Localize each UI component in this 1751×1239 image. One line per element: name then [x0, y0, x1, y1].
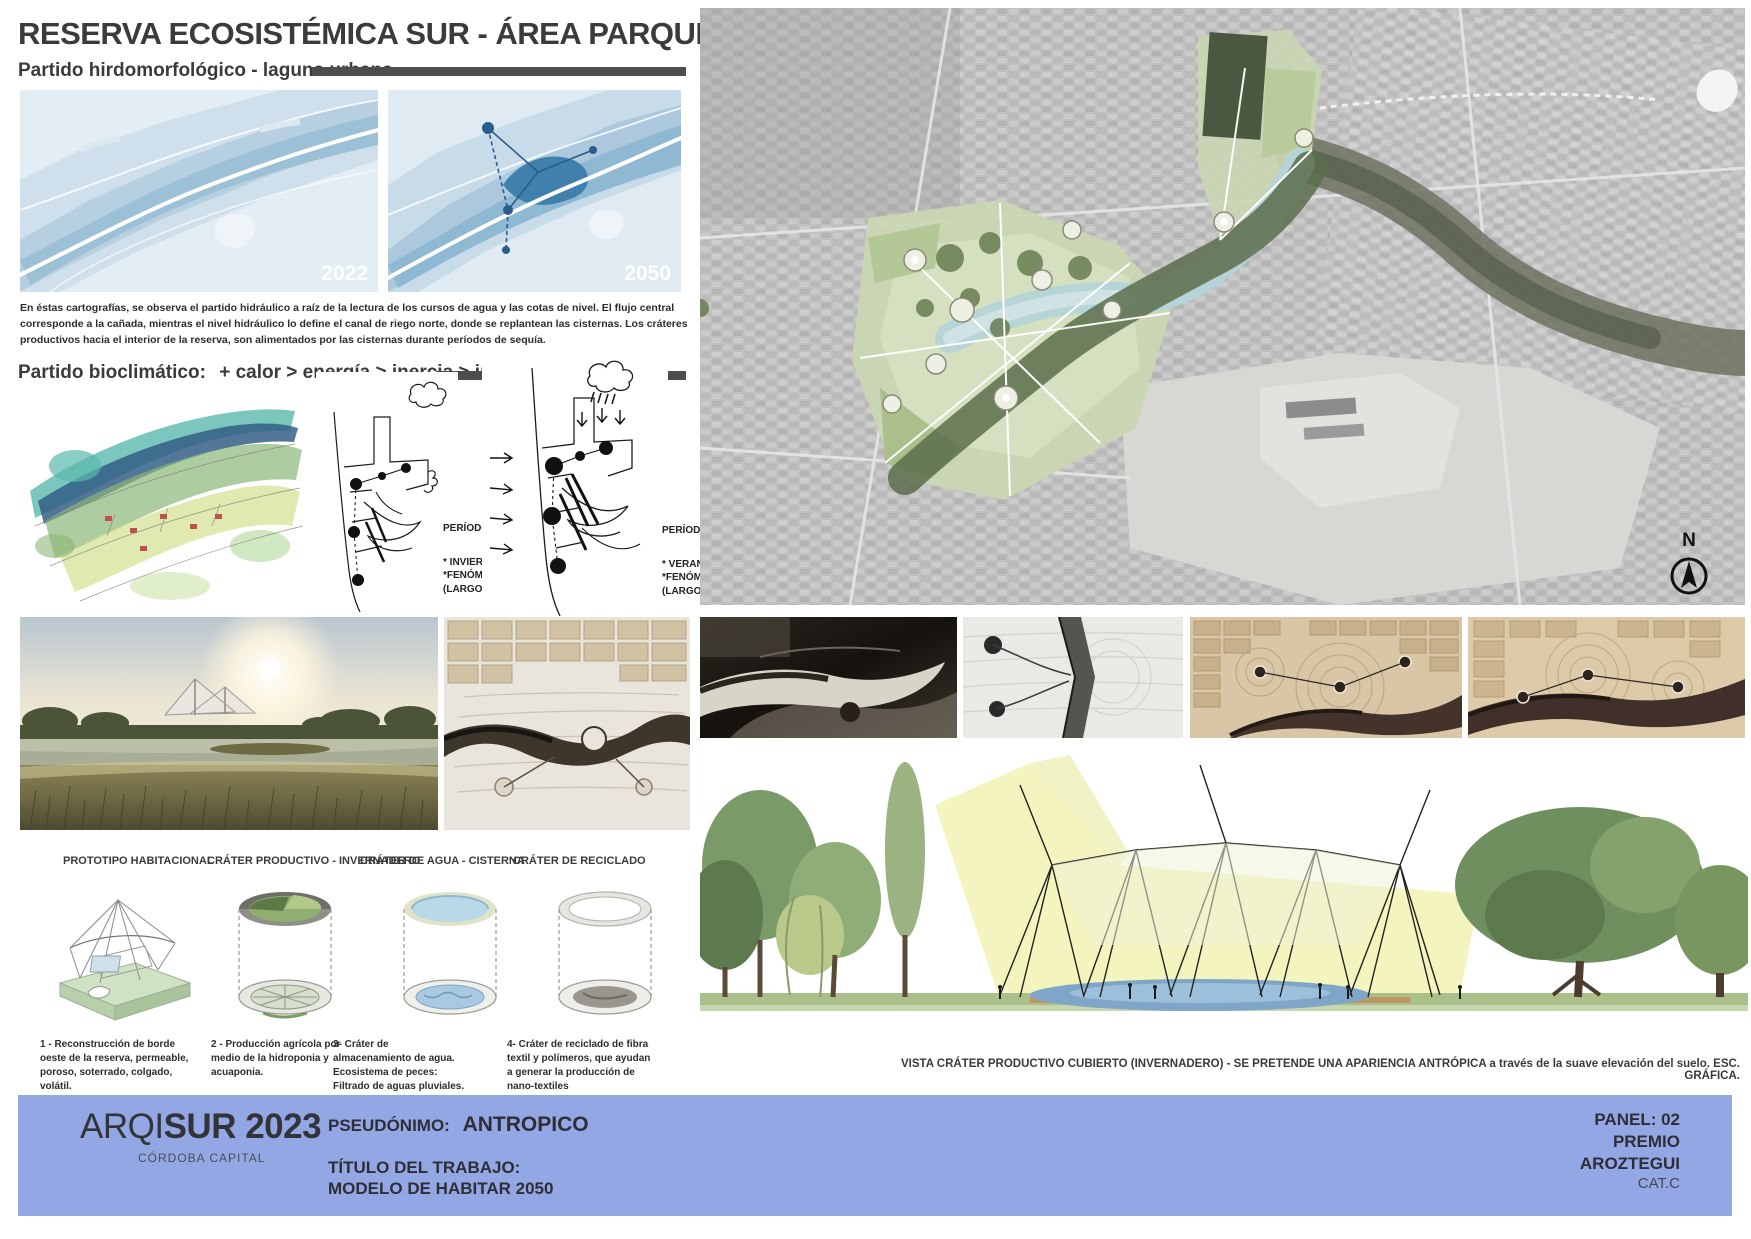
hydro-map-2022: 2022 [20, 90, 378, 292]
work-title-label: TÍTULO DEL TRABAJO: [328, 1157, 553, 1178]
category-label: CAT.C [1580, 1174, 1680, 1193]
crater-reciclado-diagram [553, 885, 657, 1030]
model-photo-white [963, 617, 1183, 738]
dry-period-ink-sketch [316, 372, 458, 616]
map-year-label: 2050 [624, 262, 671, 286]
logo-subtitle: CÓRDOBA CAPITAL [138, 1151, 265, 1165]
bioclim-heading-label: Partido bioclimático: [18, 362, 206, 383]
award-line-2: AROZTEGUI [1580, 1153, 1680, 1175]
crater-productivo-diagram [233, 885, 337, 1030]
prototype-description-1: 1 - Reconstrucción de borde oeste de la … [40, 1038, 200, 1094]
panel-number: PANEL: 02 [1580, 1109, 1680, 1131]
panel-info-block: PANEL: 02 PREMIO AROZTEGUI CAT.C [1580, 1109, 1680, 1193]
work-title-block: TÍTULO DEL TRABAJO: MODELO DE HABITAR 20… [328, 1157, 553, 1200]
crater-agua-diagram [398, 885, 502, 1030]
model-photo-tan-1 [1190, 617, 1462, 738]
pseudonym-row: PSEUDÓNIMO: ANTROPICO [328, 1113, 589, 1137]
map-year-label: 2022 [321, 262, 368, 286]
model-photo-dark [700, 617, 957, 738]
model-photo-topview [444, 617, 690, 830]
aerial-masterplan: N [700, 8, 1745, 605]
prototype-habitacional-diagram [40, 888, 200, 1028]
pseudonym-value: ANTROPICO [463, 1113, 589, 1136]
prototype-label-agua: CRÁTER DE AGUA - CISTERNA [360, 855, 525, 867]
footer-bar: ARQISUR 2023 CÓRDOBA CAPITAL PSEUDÓNIMO:… [18, 1095, 1732, 1216]
logo-arqi: ARQI [80, 1107, 164, 1146]
estival-period-ink-sketch [482, 348, 668, 620]
prototype-description-2: 2 - Producción agrícola por medio de la … [211, 1038, 341, 1080]
section-view-caption: VISTA CRÁTER PRODUCTIVO CUBIERTO (INVERN… [880, 1058, 1740, 1082]
hydro-map-2050: 2050 [388, 90, 681, 292]
north-label: N [1676, 530, 1702, 552]
divider-bar [312, 67, 686, 76]
prototype-description-4: 4- Cráter de reciclado de fibra textil y… [507, 1038, 652, 1094]
prototype-label-reciclado: CRÁTER DE RECICLADO [513, 855, 646, 867]
competition-panel: RESERVA ECOSISTÉMICA SUR - ÁREA PARQUE D… [0, 0, 1751, 1239]
prototype-label-habitacional: PROTOTIPO HABITACIONAL [63, 855, 214, 867]
wetland-render-photo [20, 617, 438, 830]
model-photo-tan-2 [1468, 617, 1745, 738]
work-title-value: MODELO DE HABITAR 2050 [328, 1178, 553, 1199]
greenhouse-section-render [700, 745, 1748, 1053]
award-line-1: PREMIO [1580, 1131, 1680, 1153]
watercolor-plan-sketch [20, 396, 310, 612]
pseudonym-label: PSEUDÓNIMO: [328, 1116, 450, 1135]
hydro-paragraph: En éstas cartografías, se observa el par… [20, 301, 688, 348]
prototype-description-3: 3- Cráter de almacenamiento de agua. Eco… [333, 1038, 468, 1094]
logo-sur-2023: SUR 2023 [164, 1107, 321, 1146]
arqisur-logo: ARQISUR 2023 [80, 1107, 321, 1147]
